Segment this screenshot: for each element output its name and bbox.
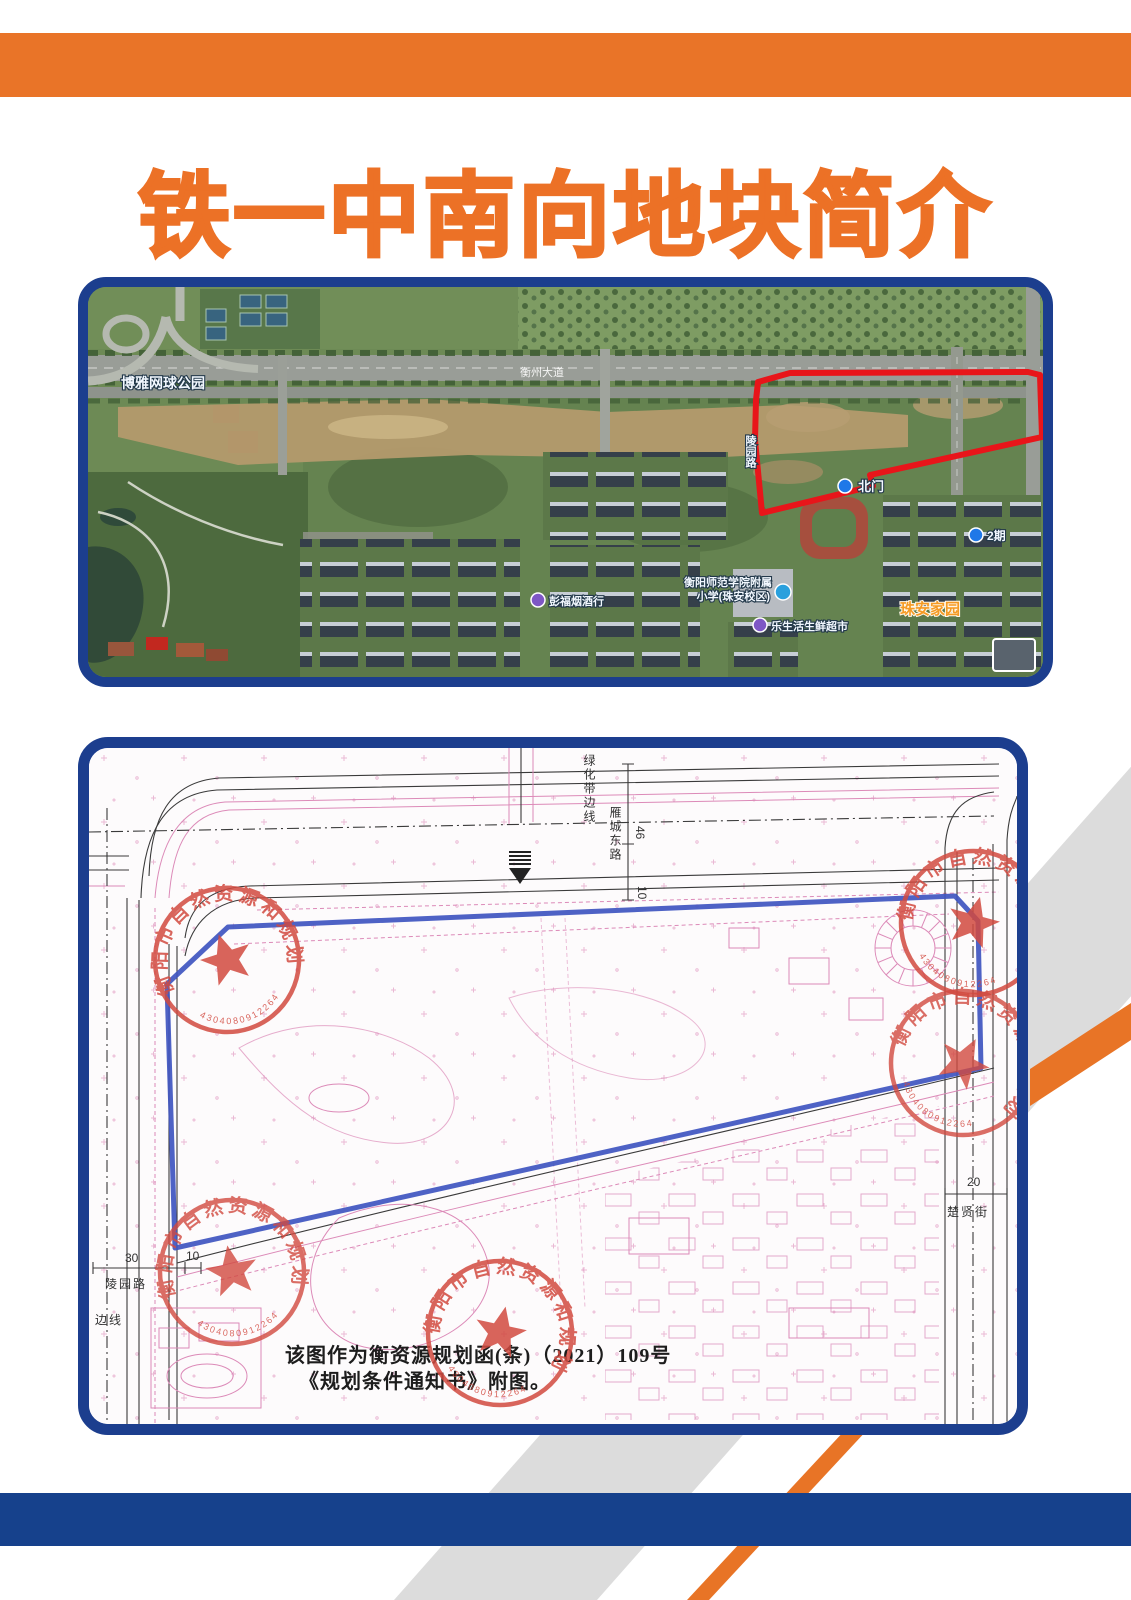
side-road-label: 陵园路 (744, 434, 757, 469)
north-gate-marker[interactable] (838, 479, 852, 493)
phase2-label: 2期 (987, 528, 1006, 543)
estate-label: 珠安家园 (900, 600, 960, 618)
top-orange-band (0, 33, 1131, 97)
planning-map: 衡阳市自然资源和规划局 4304080912264 (89, 748, 1017, 1424)
orchard-fields (518, 287, 1043, 349)
plan-caption-line1: 该图作为衡资源规划函(条)（2021）109号 (285, 1343, 671, 1367)
school-marker[interactable] (775, 584, 791, 600)
dim-10-left: 10 (186, 1249, 200, 1263)
page-title: 铁一中南向地块简介 (0, 142, 1131, 275)
dim-10-top: 10 (635, 886, 649, 900)
park-area (88, 472, 308, 677)
supermarket-marker[interactable] (753, 618, 767, 632)
park-label: 博雅网球公园 (121, 375, 205, 391)
lingyuan-road-label: 陵园路 (105, 1276, 147, 1291)
shop-label: 彭福烟酒行 (549, 594, 604, 608)
east-road-label: 雁城东路 (608, 806, 622, 862)
phase2-marker[interactable] (969, 528, 983, 542)
poster-page: 铁一中南向地块简介 (0, 0, 1131, 1600)
shop-marker[interactable] (531, 593, 545, 607)
greenbelt-line-label: 绿化带边线 (582, 753, 596, 824)
satellite-map: 博雅网球公园 衡州大道 陵园路 北门 2期 彭福烟酒行 衡阳师范学院附属 小学(… (88, 287, 1043, 677)
boundary-label: 边线 (95, 1313, 123, 1327)
dim-20: 20 (967, 1175, 981, 1189)
main-road-label: 衡州大道 (520, 365, 564, 379)
school-label-line2: 小学(珠安校区) (696, 589, 771, 603)
satellite-map-frame: 博雅网球公园 衡州大道 陵园路 北门 2期 彭福烟酒行 衡阳师范学院附属 小学(… (78, 277, 1053, 687)
school-label-line1: 衡阳师范学院附属 (684, 575, 772, 589)
map-thumbnail[interactable] (993, 639, 1035, 671)
planning-map-frame: 衡阳市自然资源和规划局 4304080912264 (78, 737, 1028, 1435)
tennis-courts (200, 289, 320, 349)
bottom-blue-band (0, 1493, 1131, 1546)
supermarket-label: 乐生活生鲜超市 (771, 619, 848, 633)
dim-30: 30 (125, 1251, 139, 1265)
north-gate-label: 北门 (858, 479, 884, 494)
dim-46: 46 (633, 826, 647, 840)
chuxian-street-label: 楚贤街 (947, 1205, 989, 1219)
